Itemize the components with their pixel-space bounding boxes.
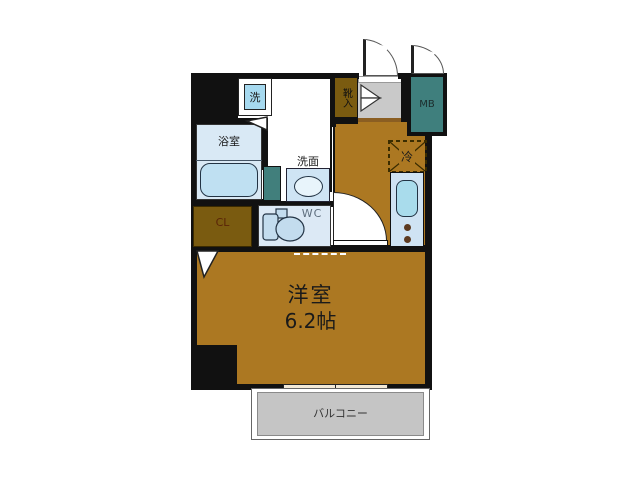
main-room-size: 6.2帖	[248, 307, 373, 331]
entrance-door-leaf-icon	[361, 98, 380, 111]
toilet-icon	[263, 209, 304, 241]
balcony-label: バルコニー	[257, 406, 424, 420]
floor-plan: 洗 浴室 CL 洗面 WC 靴入 MB 冷	[0, 0, 640, 480]
main-room-name: 洋室	[248, 282, 373, 306]
entrance-door-leaf-icon	[361, 85, 380, 98]
bath-door-icon	[247, 117, 267, 130]
room-door-icon	[197, 251, 218, 277]
